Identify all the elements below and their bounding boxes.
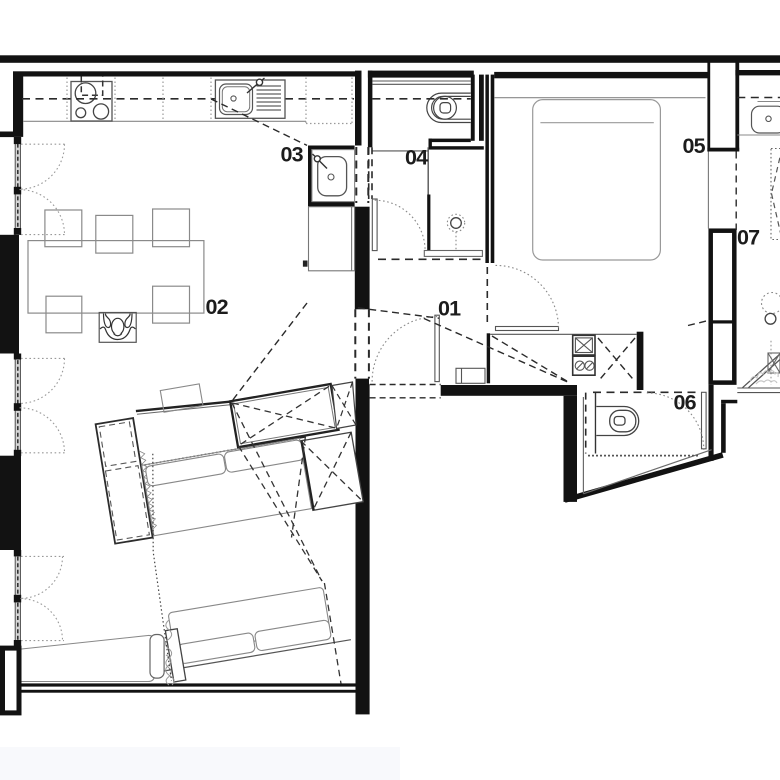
svg-text:06: 06: [674, 391, 697, 415]
svg-text:04: 04: [405, 146, 428, 170]
svg-text:02: 02: [206, 295, 229, 319]
svg-text:07: 07: [737, 226, 760, 250]
svg-text:03: 03: [281, 143, 304, 167]
svg-text:01: 01: [438, 297, 461, 321]
svg-text:05: 05: [683, 134, 706, 158]
